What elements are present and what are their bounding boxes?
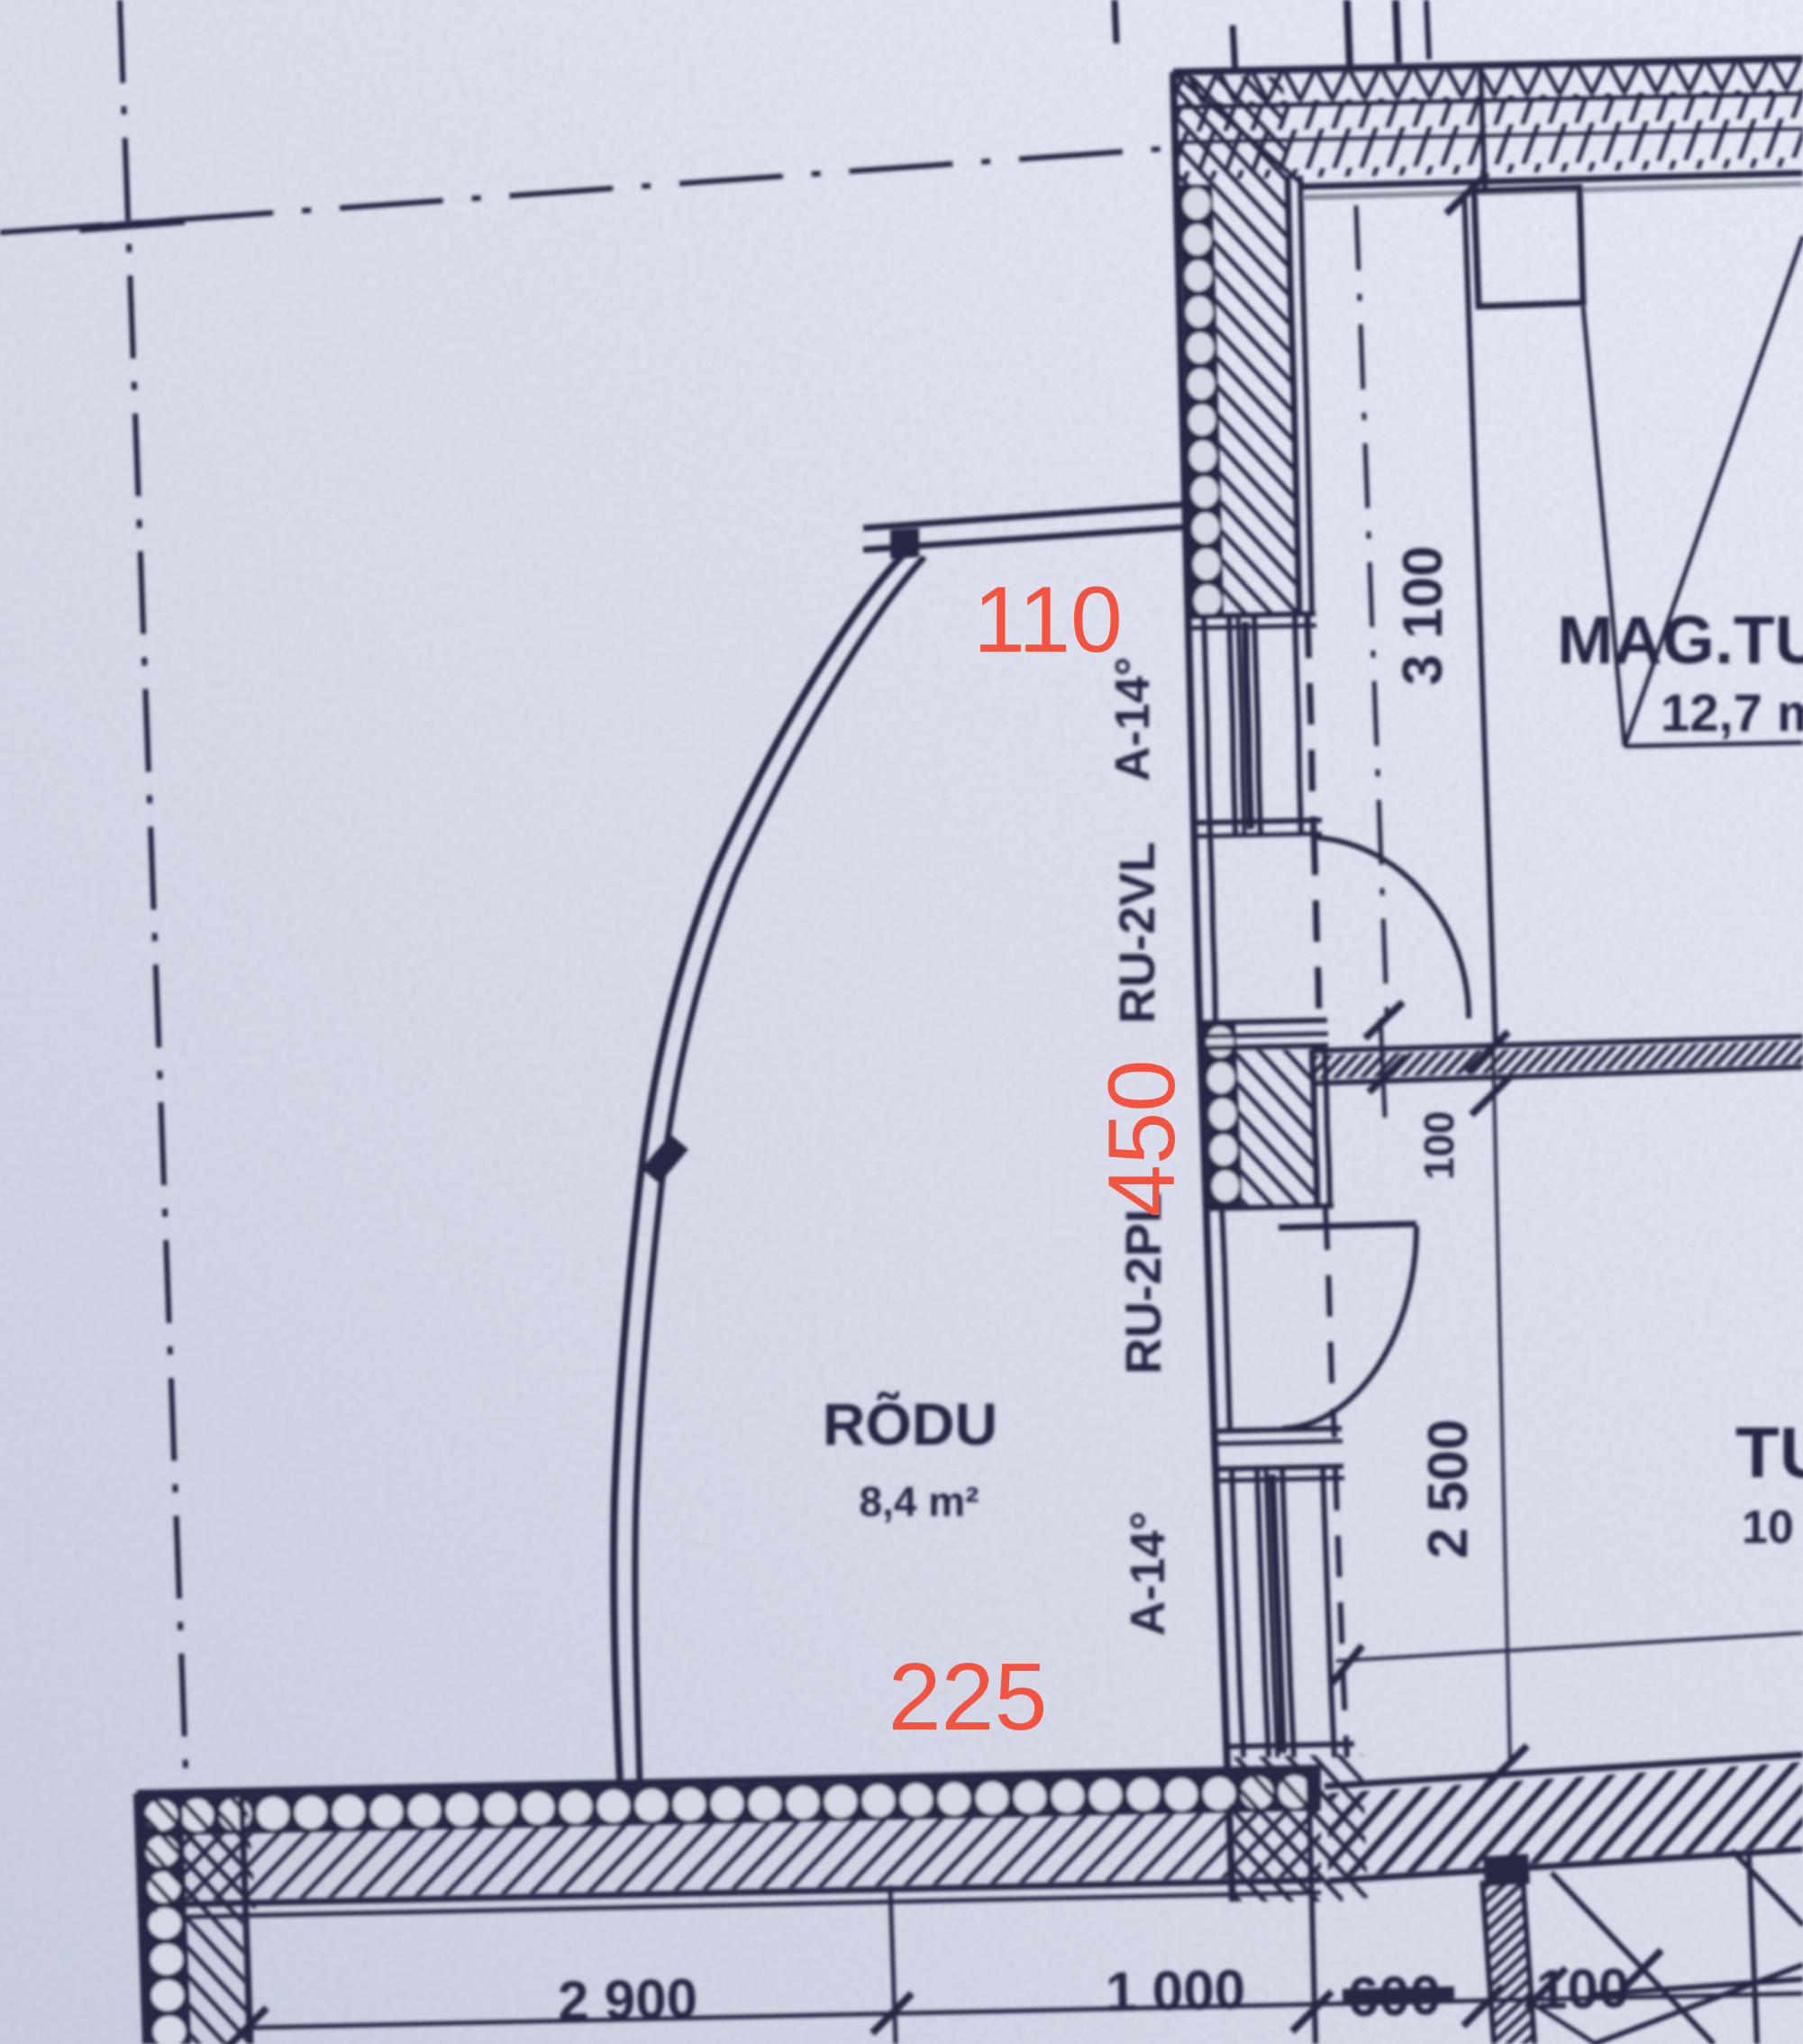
svg-text:12,7 m²: 12,7 m²	[1661, 684, 1803, 743]
svg-text:110: 110	[973, 568, 1123, 672]
svg-text:A-14°: A-14°	[1121, 1511, 1175, 1637]
svg-text:MAG.TU: MAG.TU	[1557, 602, 1803, 678]
svg-text:100: 100	[1416, 1111, 1462, 1181]
svg-text:600: 600	[1347, 1965, 1442, 2029]
svg-text:RU-2PL: RU-2PL	[1115, 1192, 1171, 1374]
svg-text:450: 450	[1089, 1059, 1195, 1217]
svg-text:8,4 m²: 8,4 m²	[860, 1478, 979, 1525]
svg-text:A-14°: A-14°	[1106, 657, 1160, 782]
svg-text:2 500: 2 500	[1417, 1419, 1480, 1558]
svg-text:2 900: 2 900	[557, 1967, 698, 2032]
svg-text:RU-2VL: RU-2VL	[1108, 842, 1165, 1024]
svg-text:1 000: 1 000	[1105, 1958, 1246, 2023]
svg-text:3 100: 3 100	[1392, 545, 1454, 685]
svg-text:RÕDU: RÕDU	[823, 1391, 997, 1457]
svg-text:100: 100	[1535, 1957, 1630, 2021]
svg-text:225: 225	[888, 1644, 1048, 1750]
svg-text:TU: TU	[1735, 1412, 1803, 1492]
svg-text:10: 10	[1742, 1501, 1794, 1554]
